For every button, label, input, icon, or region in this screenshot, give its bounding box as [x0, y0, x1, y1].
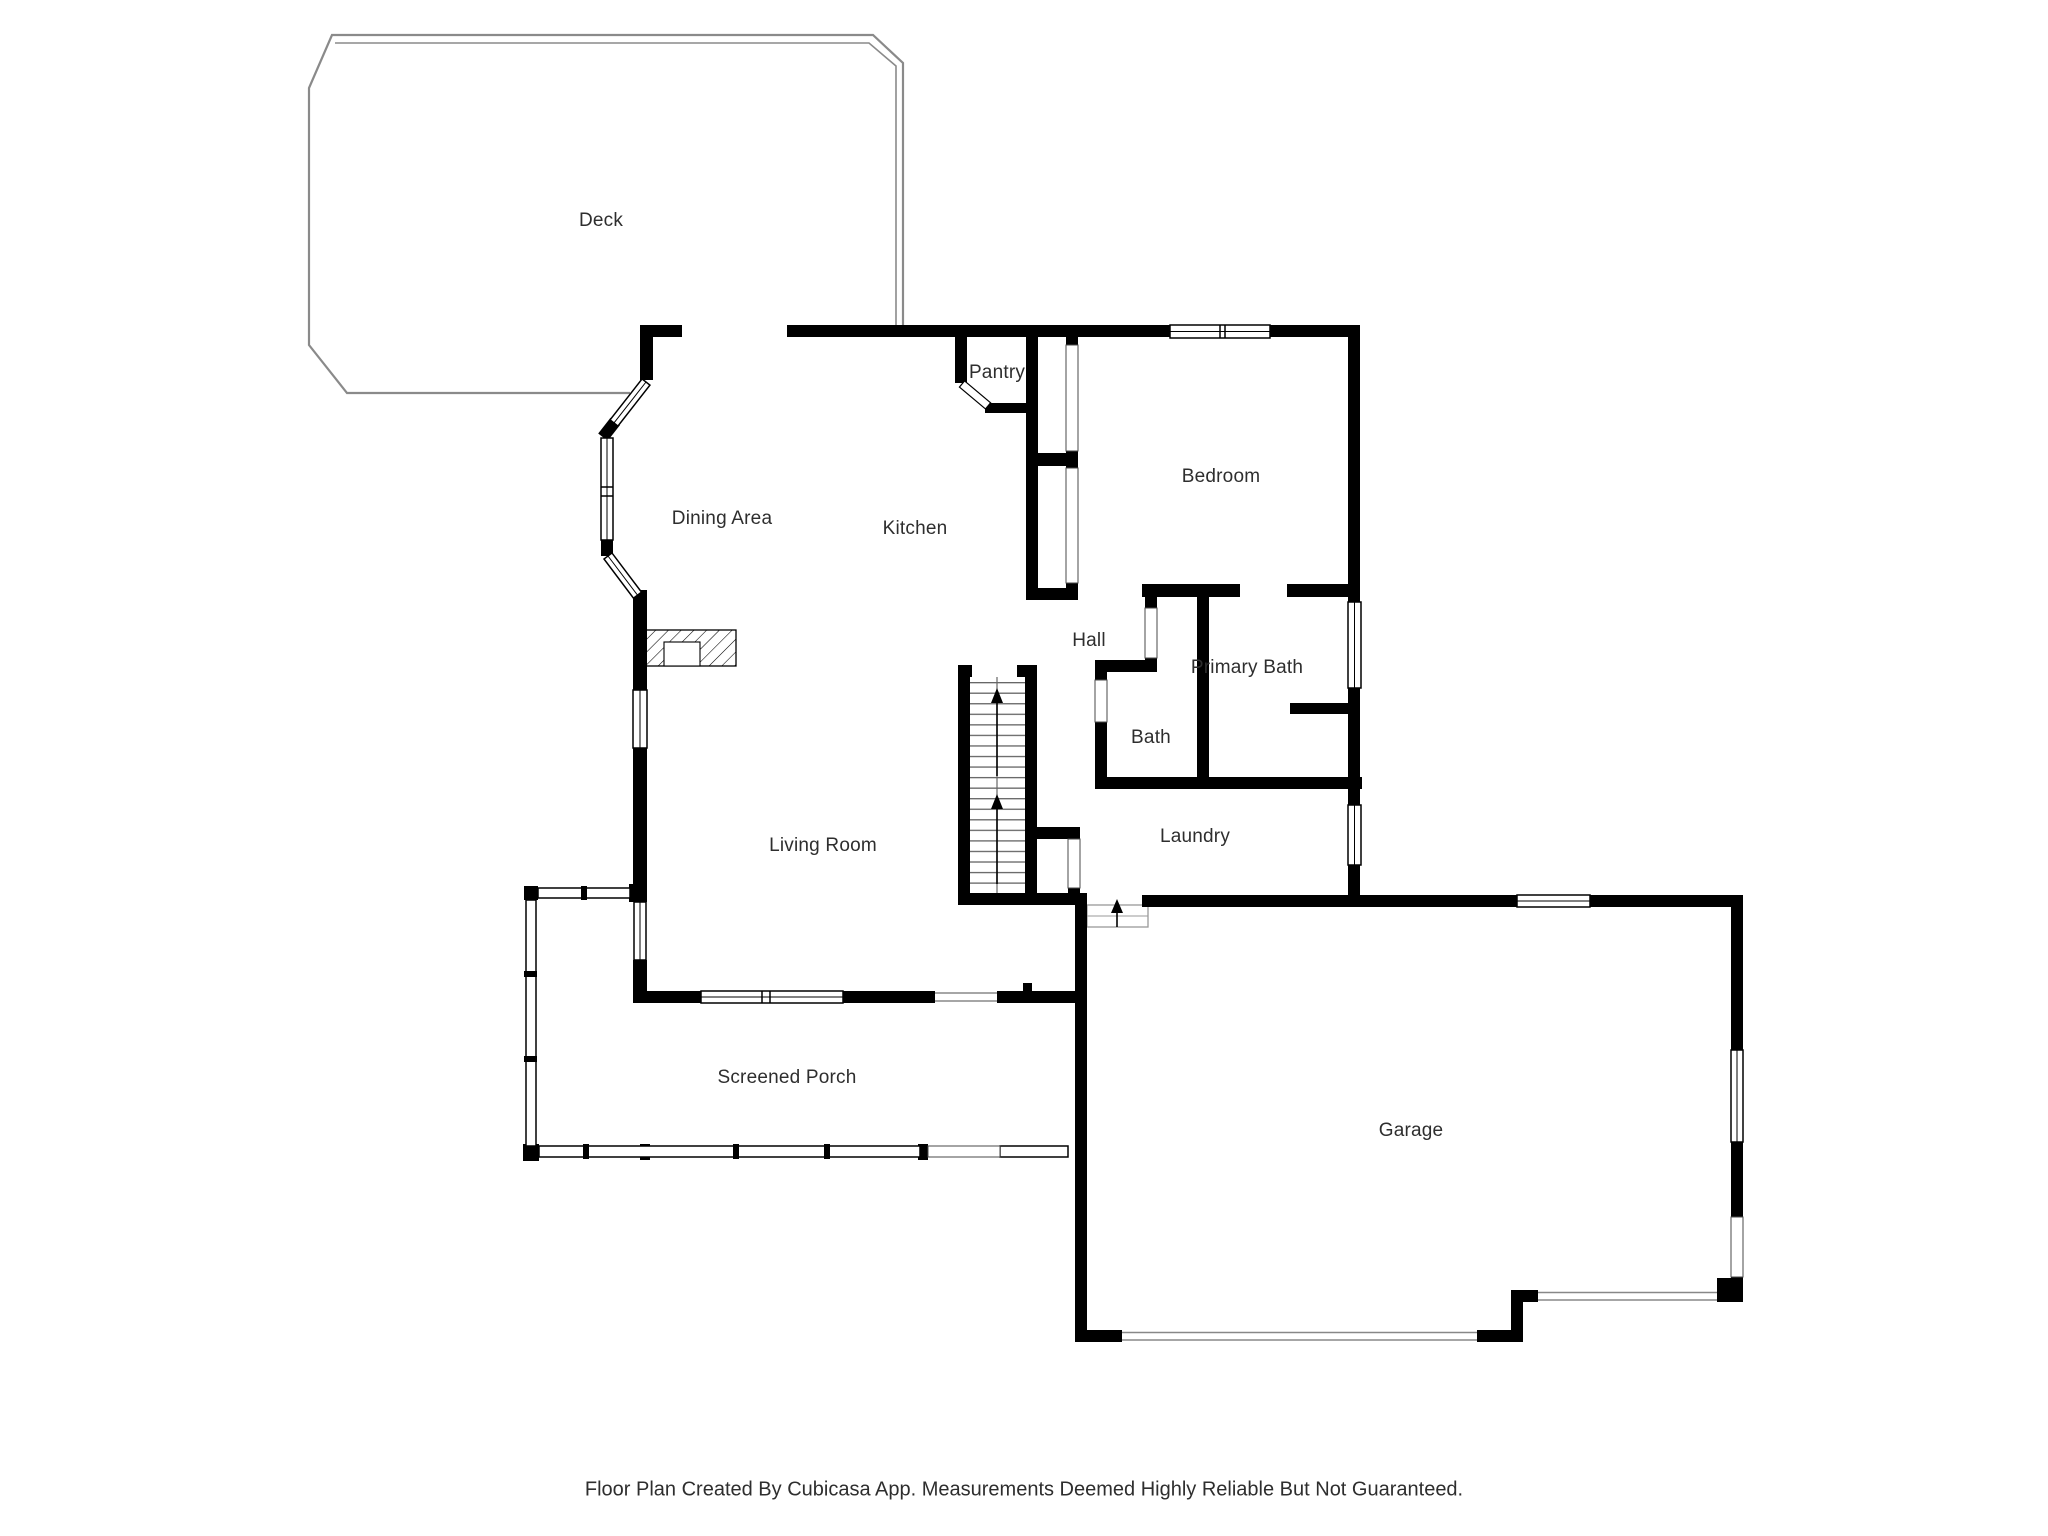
room-label-kitchen: Kitchen — [883, 518, 948, 540]
screen-mullions — [524, 886, 830, 1159]
garage-entry-steps — [1087, 899, 1148, 927]
bath-door — [1095, 680, 1107, 722]
room-label-primary-bath: Primary Bath — [1191, 657, 1303, 679]
walls — [523, 325, 1743, 1342]
living-room-west-window — [633, 690, 647, 748]
floor-plan-canvas: Deck Dining Area Kitchen Pantry Bedroom … — [0, 0, 2048, 1536]
porch-door-threshold — [935, 993, 997, 1001]
room-label-laundry: Laundry — [1160, 826, 1230, 848]
room-label-living-room: Living Room — [769, 835, 877, 857]
garage-door-main — [1122, 1333, 1477, 1341]
room-label-bedroom: Bedroom — [1182, 466, 1261, 488]
door-openings — [928, 345, 1743, 1277]
thresholds — [935, 993, 1717, 1340]
room-label-hall: Hall — [1072, 630, 1106, 652]
living-room-porch-window — [634, 902, 646, 960]
hall-primary-bath-door — [1145, 608, 1157, 658]
garage-side-opening — [1731, 1217, 1743, 1277]
living-room-south-window — [701, 991, 843, 1003]
room-label-dining-area: Dining Area — [672, 508, 772, 530]
bedroom-closet-door-upper — [1066, 345, 1078, 451]
bay-angled-window-lower — [604, 553, 641, 598]
porch-exit-opening — [928, 1146, 1000, 1157]
room-label-deck: Deck — [579, 210, 623, 232]
screened-porch-walls — [524, 886, 1068, 1159]
footer-disclaimer: Floor Plan Created By Cubicasa App. Meas… — [585, 1479, 1463, 1502]
bedroom-closet-door-lower — [1066, 468, 1078, 583]
garage-door-secondary — [1538, 1293, 1717, 1301]
bedroom-north-window — [1170, 325, 1270, 338]
garage-east-window — [1731, 1050, 1743, 1142]
pantry-door-leaf — [959, 381, 990, 409]
room-label-pantry: Pantry — [969, 362, 1025, 384]
fireplace — [646, 630, 736, 666]
staircase — [970, 677, 1025, 893]
bay-angled-window-upper — [610, 379, 650, 426]
garage-north-window — [1517, 895, 1590, 907]
hall-closet-door — [1068, 839, 1080, 888]
windows — [601, 325, 1743, 1142]
floor-plan-drawing — [0, 0, 2048, 1536]
room-label-bath: Bath — [1131, 727, 1171, 749]
step-up-arrow — [1111, 899, 1123, 927]
room-label-garage: Garage — [1379, 1120, 1444, 1142]
dining-bay-west-window — [601, 438, 613, 540]
room-label-screened-porch: Screened Porch — [717, 1067, 856, 1089]
laundry-east-window — [1348, 805, 1361, 865]
primary-bath-east-window — [1348, 602, 1361, 688]
